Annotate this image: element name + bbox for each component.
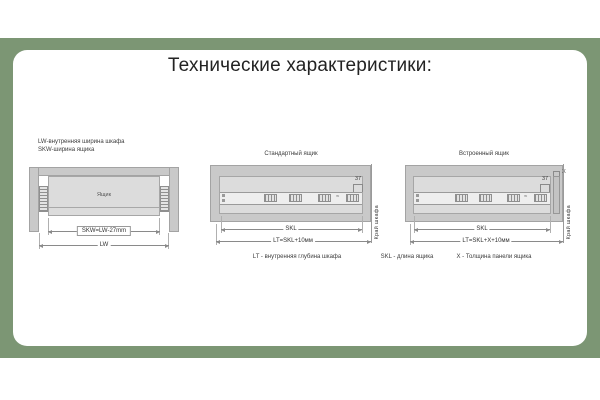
inset-drawer-title: Встроенный ящик	[405, 150, 563, 158]
extension-line	[550, 216, 551, 233]
drawer-front-panel	[553, 176, 560, 214]
slide-canvas: Технические характеристики: LW-внутрення…	[0, 0, 600, 400]
drawer-front-line	[49, 207, 159, 208]
cabinet-left-wall	[29, 167, 39, 232]
standard-drawer-title: Стандартный ящик	[210, 150, 372, 158]
slide-rail-right	[160, 186, 169, 212]
dim-label-37: 37	[539, 176, 551, 182]
rail-detail	[416, 199, 419, 202]
bearing-block	[346, 194, 359, 202]
cabinet-edge-label: Край шкафа	[374, 205, 380, 240]
break-symbol: ≈	[336, 194, 339, 200]
dim-label-37: 37	[352, 176, 364, 182]
bearing-block	[534, 194, 547, 202]
dim-bracket-x	[553, 171, 560, 176]
cabinet-right-wall	[169, 167, 179, 232]
page-title: Технические характеристики:	[0, 55, 600, 77]
cabinet-top-band	[29, 167, 179, 176]
bearing-block	[455, 194, 468, 202]
slide-rail-left	[39, 186, 48, 212]
definition-x: X - Толщина панели ящика	[449, 253, 539, 261]
dim-label-skl: SKL	[474, 226, 489, 232]
dim-bracket-37	[540, 184, 550, 192]
definition-lt: LT - внутренняя глубина шкафа	[222, 253, 372, 261]
bearing-block	[318, 194, 331, 202]
bearing-block	[507, 194, 520, 202]
rail-detail	[222, 199, 225, 202]
break-symbol: ≈	[524, 194, 527, 200]
bearing-block	[479, 194, 492, 202]
top-view-legend-lw: LW-внутренняя ширина шкафа	[38, 138, 125, 146]
dim-label-lt: LT=SKL+10мм	[271, 238, 315, 244]
rail-detail	[416, 194, 419, 197]
definition-skl: SKL - длина ящика	[367, 253, 447, 261]
drawer-label: Ящик	[48, 192, 160, 198]
bearing-block	[264, 194, 277, 202]
dim-label-lw: LW	[98, 242, 111, 248]
bearing-block	[289, 194, 302, 202]
dim-label-lt: LT=SKL+X+10мм	[460, 238, 511, 244]
dim-label-skl: SKL	[283, 226, 298, 232]
rail-detail	[222, 194, 225, 197]
cabinet-edge-label: Край шкафа	[566, 205, 572, 240]
dim-bracket-37	[353, 184, 363, 192]
cabinet-edge-line	[371, 164, 372, 243]
dim-label-skw: SKW=LW-27mm	[77, 226, 131, 236]
extension-line	[362, 216, 363, 233]
top-view-legend-skw: SKW-ширина ящика	[38, 146, 94, 154]
cabinet-edge-line	[563, 164, 564, 243]
